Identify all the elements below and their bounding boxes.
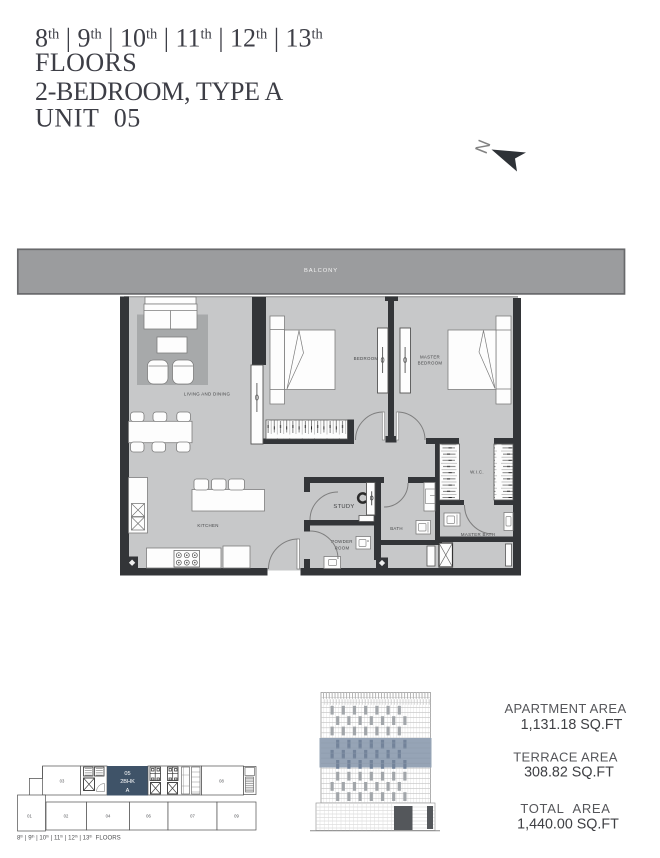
svg-text:1,131.18 SQ.FT: 1,131.18 SQ.FT [521,717,623,733]
svg-text:N: N [471,137,494,157]
svg-text:TERRACE AREA: TERRACE AREA [513,750,618,765]
svg-text:08: 08 [219,779,224,784]
svg-text:BALCONY: BALCONY [304,268,338,274]
svg-text:LIVING AND DINING: LIVING AND DINING [184,392,231,397]
svg-text:BATH: BATH [390,526,403,531]
svg-text:STUDY: STUDY [333,504,354,510]
svg-text:07: 07 [190,814,195,819]
svg-text:MASTER: MASTER [420,355,440,360]
svg-text:8th | 9th | 10th | 11th | 12th: 8th | 9th | 10th | 11th | 12th | 13th FL… [17,835,121,842]
svg-text:KITCHEN: KITCHEN [197,523,218,528]
svg-text:2-BEDROOM, TYPE A: 2-BEDROOM, TYPE A [35,77,283,106]
svg-text:03: 03 [60,779,65,784]
svg-text:06: 06 [146,814,151,819]
svg-text:BEDROOM: BEDROOM [354,356,379,361]
svg-text:A: A [126,788,130,794]
svg-text:W.I.C.: W.I.C. [470,470,484,475]
svg-text:MASTER BATH: MASTER BATH [461,532,495,537]
svg-text:TOTAL AREA: TOTAL AREA [520,801,610,816]
svg-text:02: 02 [64,814,69,819]
svg-text:UNIT 05: UNIT 05 [35,104,141,133]
svg-text:BEDROOM: BEDROOM [418,361,443,366]
svg-text:FLOORS: FLOORS [35,48,137,77]
svg-text:2BHK: 2BHK [120,779,135,785]
svg-text:05: 05 [124,771,130,777]
svg-text:308.82 SQ.FT: 308.82 SQ.FT [524,765,614,781]
svg-text:09: 09 [234,814,239,819]
svg-text:04: 04 [106,814,111,819]
svg-text:01: 01 [27,814,32,819]
svg-text:1,440.00 SQ.FT: 1,440.00 SQ.FT [517,817,619,833]
svg-text:APARTMENT AREA: APARTMENT AREA [505,701,627,716]
svg-text:POWDER: POWDER [331,539,353,544]
